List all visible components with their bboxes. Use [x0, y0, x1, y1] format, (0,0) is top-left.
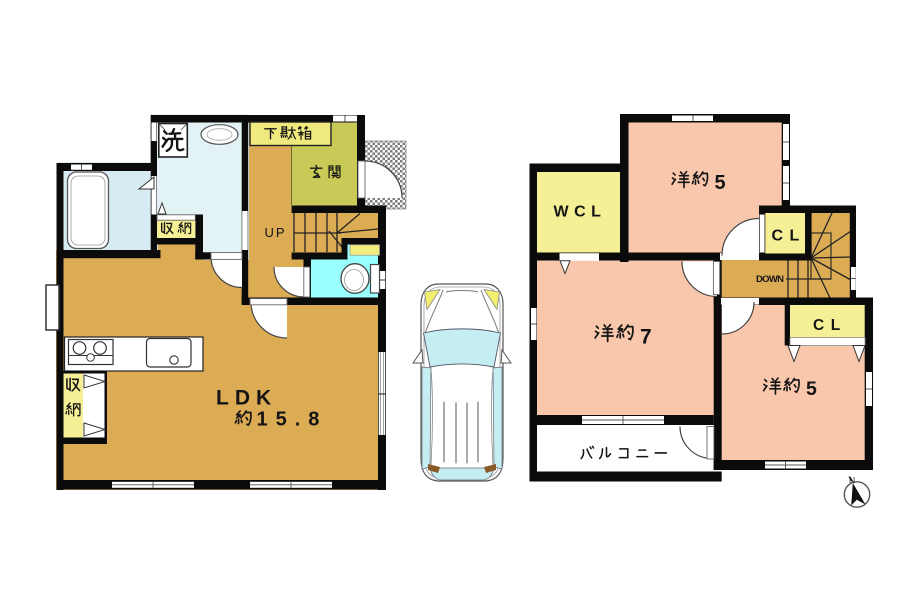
svg-text:5: 5	[806, 378, 817, 400]
svg-text:LDK: LDK	[216, 387, 277, 410]
svg-text:CL: CL	[813, 317, 847, 334]
svg-text:N: N	[849, 475, 855, 485]
svg-text:WCL: WCL	[554, 204, 607, 221]
svg-text:DOWN: DOWN	[756, 274, 784, 285]
svg-text:CL: CL	[772, 228, 806, 245]
svg-text:15.8: 15.8	[257, 409, 328, 431]
svg-text:7: 7	[640, 326, 652, 349]
svg-text:UP: UP	[265, 225, 287, 240]
svg-text:5: 5	[715, 172, 726, 194]
